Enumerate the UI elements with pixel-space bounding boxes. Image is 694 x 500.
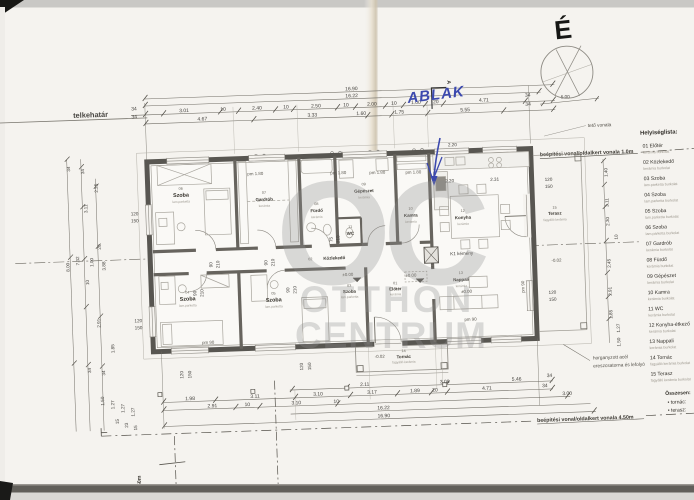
room-list-finish: lam.parketta burkolat (644, 182, 678, 187)
room-list-title: Helyiséglista: (640, 129, 678, 136)
room-list-item: 10 Kamra (648, 289, 670, 296)
room-name: Gardrób (255, 197, 273, 203)
setback-label: beépítési vonal/oldalkert vonala 4.50m (537, 415, 634, 424)
dim-label: 2.45 (606, 258, 611, 268)
pm-label: pm 90 (202, 340, 215, 345)
dim-label: 2.11 (360, 382, 370, 388)
room-list-panel: Helyiséglista: 01 Előtér kerámia burkola… (640, 129, 693, 414)
dim-label: 5.46 (512, 376, 522, 382)
room-list-item: 05 Szoba (645, 208, 667, 215)
room-finish: lam.parketta (172, 199, 190, 204)
room-list-item: 02 Közlekedő (643, 159, 674, 166)
dim-label: 10 (283, 104, 289, 110)
dim-label: 3.00 (562, 391, 572, 397)
room-list-finish: kerámia burkolat (647, 264, 674, 269)
dim-label: 3.11 (250, 394, 260, 400)
dim-label: 1.98 (185, 396, 195, 402)
room-list-item: 12 Konyha-étkező (649, 321, 690, 328)
room-num: 06 (179, 187, 183, 191)
dim-label: 3.11 (604, 198, 609, 207)
gutter-label-1: horganyzott acél (593, 354, 628, 361)
dim-label: 4.67 (197, 116, 207, 122)
dim-label: 2.40 (252, 105, 262, 111)
room-list-item: 14 Tornác (650, 355, 673, 362)
dim-label: 3.08 (440, 379, 450, 385)
total-dim-label: 16.22 (377, 405, 390, 411)
door-size: 210 (215, 260, 220, 268)
win-size: 150 (135, 325, 143, 330)
room-name: Szoba (180, 296, 197, 303)
room-list-finish: kerámia burkolat (649, 329, 676, 334)
room-list-finish: kerámia burkolat (643, 166, 670, 171)
dim-label: 10 (343, 102, 349, 108)
room-list-summary: Összesen: • tornác: • terasz: (665, 389, 692, 414)
watermark-line1: OTTHON (300, 279, 474, 320)
top-dimension-labels: 34 34 3.01 10 2.40 10 2.50 10 2.00 10 1.… (131, 80, 532, 125)
dim-label: 10 (614, 234, 619, 240)
win-size: 120 (549, 290, 557, 295)
dim-label: 1.85 (608, 309, 613, 319)
room-list-finish: kerámia burkolat (648, 296, 675, 301)
room-num: 07 (262, 191, 266, 195)
win-size: 150 (131, 218, 139, 223)
dim-label: 1.40 (603, 167, 608, 177)
setback-note-bottom: beépítési vonal/oldalkert vonala 4.50m (101, 407, 694, 439)
dim-label: 3.88 (101, 261, 106, 271)
dim-label: 34 (101, 370, 106, 376)
room-finish: fagyálló kerámia (392, 360, 416, 365)
kitchen-dim: 2.20 (448, 142, 458, 147)
win-size: 150 (307, 362, 312, 370)
dim-label: 2.25 (94, 183, 99, 193)
room-list-finish: fagyálló kerámia burkolat (651, 377, 691, 382)
dim-label: 3.33 (307, 112, 317, 118)
room-finish: kerámia (259, 204, 271, 208)
gutter-label-2: ereszcsatorna és lefolyó (593, 362, 645, 370)
room-list-finish: kerámia burkolat (650, 345, 677, 350)
dim-label: 15 (115, 418, 120, 424)
total-dim-label: 16.90 (377, 413, 390, 419)
win-size: 150 (549, 297, 557, 302)
dim-label: 2.91 (96, 318, 101, 328)
room-list-finish: kerámia burkolat (643, 150, 670, 155)
summary-row: • terasz: (668, 407, 687, 414)
dim-label: 34 (131, 114, 137, 120)
dim-label: 3.01 (179, 108, 189, 114)
dim-label: 1.85 (110, 344, 115, 354)
dim-label: 4.71 (479, 97, 489, 103)
room-list-item: 07 Gardrób (646, 240, 672, 247)
dim-label: 34 (525, 101, 531, 107)
dim-label: 1.27 (120, 403, 125, 413)
dim-label: 7.32 (75, 256, 80, 266)
scan-artifacts-bottom (0, 481, 694, 500)
dim-label: 10 (85, 279, 90, 285)
dim-label: 10 (333, 399, 339, 405)
dim-label: 1.50 (616, 337, 621, 347)
dim-label: 3.11 (83, 204, 88, 213)
dim-label: 34 (66, 166, 71, 172)
room-finish: fagyálló kerámia (543, 217, 567, 222)
room-finish: lam.parketta (179, 303, 197, 308)
pm-label: pm 1.80 (247, 171, 264, 177)
dim-label: 10 (220, 107, 226, 113)
dim-label: 3.17 (367, 390, 377, 396)
dim-label: 34 (87, 367, 92, 373)
room-list-item: 01 Előtér (642, 143, 663, 150)
dim-label: 2.00 (367, 101, 377, 107)
dim-label: 1.60 (356, 111, 366, 117)
room-name: Terasz (548, 210, 563, 215)
door-size: 210 (270, 258, 275, 266)
dim-label: 34 (525, 92, 531, 98)
room-list-item: 09 Gépészet (647, 273, 677, 280)
dim-label: 20 (432, 387, 438, 393)
total-dim-label: 16.90 (345, 86, 358, 92)
dim-label: 1.27 (130, 407, 135, 417)
dim-label: 20 (97, 244, 102, 250)
room-list-item: 11 WC (648, 306, 664, 313)
compass-dim-label: 5.00 (561, 94, 571, 99)
room-list-items: 01 Előtér kerámia burkolat 02 Közlekedő … (642, 142, 692, 382)
room-label-15: 15 Terasz fagyálló kerámia (543, 205, 567, 222)
dim-label: 8.00 (65, 262, 70, 272)
pm-label: pm 90 (520, 280, 525, 293)
terrace-outline (533, 154, 587, 332)
door-size: 90 (192, 290, 197, 296)
dim-label: 1.75 (394, 109, 404, 115)
room-list-item: 04 Szoba (644, 192, 666, 199)
room-list-finish: lam.parketta burkolat (646, 231, 680, 236)
room-num: 04 (185, 291, 189, 295)
room-list-finish: kerámia burkolat (647, 280, 674, 285)
north-compass: É 5.00 (537, 13, 599, 106)
dim-label: 3.10 (291, 400, 301, 406)
dim-label: 1.50 (100, 396, 105, 406)
dim-label: 2.50 (311, 103, 321, 109)
dim-label: 1.27 (616, 323, 621, 333)
dim-label: 23 (124, 422, 129, 428)
win-size: 120 (131, 211, 139, 216)
dim-label: 5.55 (460, 107, 470, 113)
door-size: 210 (199, 289, 204, 297)
win-size: 150 (545, 184, 553, 189)
dim-label: 2.91 (207, 403, 217, 409)
room-list-finish: lam.parketta burkolat (645, 215, 679, 220)
ablak-handwriting: ABLAK (405, 83, 465, 107)
elevation-label: -0.02 (551, 258, 562, 263)
dim-label: 10 (244, 402, 250, 408)
room-list-item: 08 Fürdő (646, 257, 667, 264)
win-size: 120 (134, 318, 142, 323)
dim-label: 10 (391, 101, 397, 107)
room-list-item: 06 Szoba (645, 224, 667, 231)
kitchen-dim: 2.31 (490, 177, 500, 182)
room-list-item: 13 Nappali (649, 338, 674, 345)
scanned-floor-plan-sheet: telkehatár 34 34 3.01 10 2.40 10 2.50 10… (0, 0, 694, 500)
dim-label: 1.89 (410, 388, 420, 394)
dim-label: 1.27 (110, 400, 115, 410)
summary-title: Összesen: (665, 389, 691, 397)
left-dimension-chains: 34 34 2.25 3.11 20 1.00 7.32 8.00 10 3.8… (62, 155, 139, 433)
win-size: 120 (545, 177, 553, 182)
watermark: OC OTTHON CENTRUM (276, 151, 487, 356)
dim-label: 2.91 (607, 286, 612, 296)
door-size: 90 (208, 262, 213, 268)
setback-note-right: beépítési vonal/oldalkert vonala 1.0m (540, 147, 694, 159)
room-list-finish: kerámia burkolat (648, 313, 675, 318)
room-list-finish: lam.parketta burkolat (644, 198, 678, 203)
gutter-note: horganyzott acél ereszcsatorna és lefoly… (563, 342, 645, 371)
dim-label: 1.00 (89, 257, 94, 267)
room-list-item: 15 Terasz (650, 371, 673, 378)
dim-label: 34 (80, 169, 85, 175)
dim-label: 2.30 (605, 216, 610, 226)
dim-label: 34 (547, 373, 553, 379)
win-size: 120 (179, 370, 184, 378)
right-dimension-chain: 1.40 3.11 2.30 10 2.45 2.91 1.85 1.27 1.… (601, 158, 623, 347)
room-num: 15 (552, 206, 556, 210)
room-list-finish: kerámia burkolat (646, 247, 673, 252)
floor-plan-drawing: telkehatár 34 34 3.01 10 2.40 10 2.50 10… (0, 0, 694, 500)
room-name: Szoba (173, 192, 190, 199)
room-num: 05 (271, 292, 275, 296)
watermark-line2: CENTRUM (295, 315, 487, 356)
room-list-item: 03 Szoba (644, 175, 666, 182)
north-letter: É (553, 14, 573, 46)
telkehatar-label: telkehatár (73, 110, 108, 120)
door-size: 90 (263, 260, 268, 266)
dim-label: 3.10 (313, 391, 323, 397)
dim-label: 4.71 (482, 386, 492, 392)
summary-row: • tornác: (667, 399, 686, 406)
win-size: 150 (187, 370, 192, 378)
dim-label: 34 (542, 383, 548, 389)
win-size: 120 (299, 362, 304, 370)
dim-label: 15 (133, 425, 138, 431)
total-dim-label: 16.22 (345, 93, 358, 99)
setback-label: beépítési vonal/oldalkert vonala 1.0m (540, 149, 634, 158)
roof-line-label: tető vonala (588, 122, 612, 129)
room-list-finish: fagyálló kerámia burkolat (650, 361, 690, 366)
dim-label: 34 (131, 106, 137, 112)
